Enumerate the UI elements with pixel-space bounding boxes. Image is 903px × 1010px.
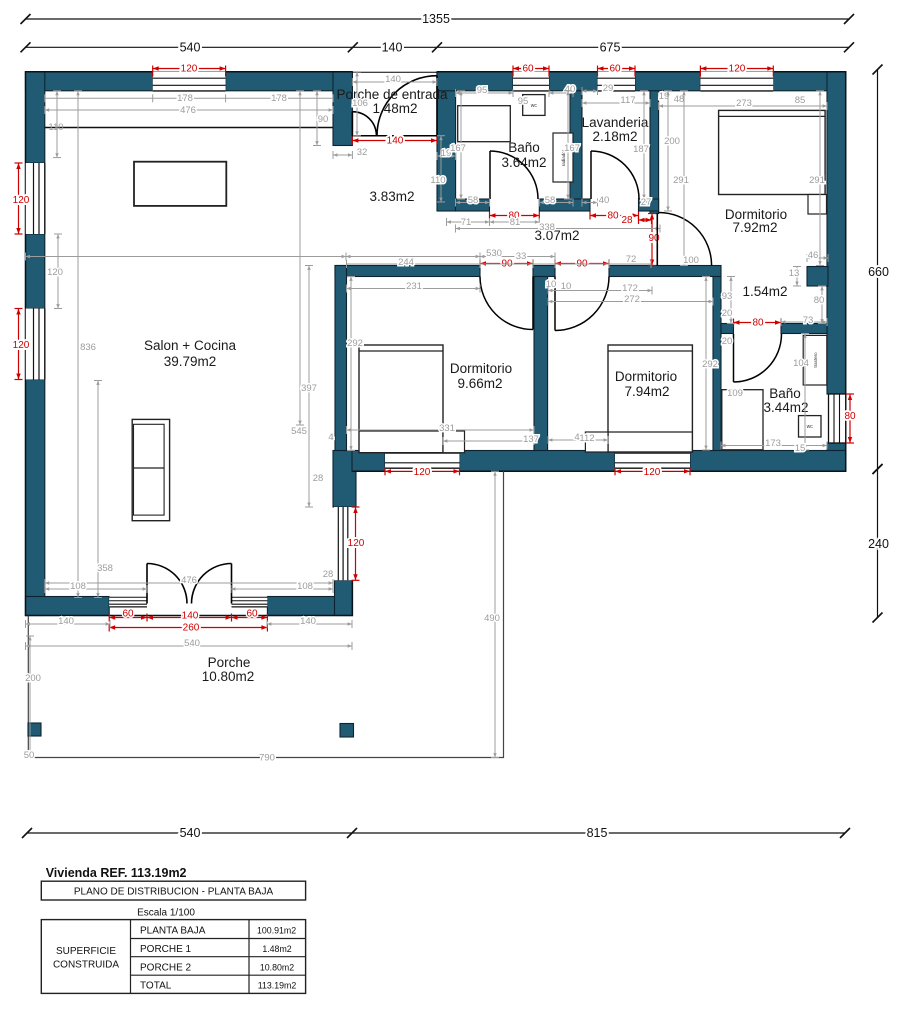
svg-text:Escala 1/100: Escala 1/100 bbox=[137, 908, 195, 919]
svg-text:104: 104 bbox=[793, 358, 809, 369]
svg-text:wc: wc bbox=[807, 424, 814, 430]
svg-text:260: 260 bbox=[183, 623, 200, 634]
svg-text:20: 20 bbox=[722, 308, 733, 319]
svg-text:20: 20 bbox=[722, 336, 733, 347]
svg-text:120: 120 bbox=[348, 538, 365, 549]
svg-text:32: 32 bbox=[357, 147, 368, 158]
svg-text:80: 80 bbox=[607, 211, 619, 222]
svg-text:Vivienda REF. 113.19m2: Vivienda REF. 113.19m2 bbox=[46, 866, 187, 880]
svg-text:95: 95 bbox=[477, 85, 488, 96]
svg-text:108: 108 bbox=[297, 581, 313, 592]
svg-text:CONSTRUIDA: CONSTRUIDA bbox=[53, 960, 119, 971]
svg-text:10.80m2: 10.80m2 bbox=[260, 963, 294, 973]
svg-text:790: 790 bbox=[259, 753, 275, 764]
svg-text:15: 15 bbox=[795, 443, 806, 454]
svg-text:291: 291 bbox=[809, 175, 825, 186]
svg-text:476: 476 bbox=[181, 575, 197, 586]
svg-text:93: 93 bbox=[722, 291, 733, 302]
svg-text:140: 140 bbox=[385, 74, 401, 85]
svg-text:60: 60 bbox=[246, 609, 258, 620]
svg-text:110: 110 bbox=[48, 122, 63, 133]
svg-text:167: 167 bbox=[450, 143, 466, 154]
svg-text:28: 28 bbox=[313, 473, 324, 484]
svg-text:490: 490 bbox=[484, 613, 500, 624]
svg-text:1.48m2: 1.48m2 bbox=[262, 944, 291, 954]
svg-text:PLANTA BAJA: PLANTA BAJA bbox=[140, 926, 206, 937]
svg-text:140: 140 bbox=[300, 616, 316, 627]
svg-text:90: 90 bbox=[318, 114, 329, 125]
svg-text:1355: 1355 bbox=[422, 12, 450, 26]
svg-text:27: 27 bbox=[641, 197, 652, 208]
svg-text:540: 540 bbox=[180, 40, 201, 54]
svg-text:1.48m2: 1.48m2 bbox=[372, 101, 417, 116]
svg-text:660: 660 bbox=[868, 265, 889, 279]
svg-text:120: 120 bbox=[414, 467, 431, 478]
svg-text:4: 4 bbox=[328, 432, 333, 443]
svg-text:40: 40 bbox=[565, 84, 576, 95]
svg-text:540: 540 bbox=[184, 638, 200, 649]
svg-text:58: 58 bbox=[468, 195, 479, 206]
svg-text:140: 140 bbox=[382, 40, 403, 54]
svg-text:675: 675 bbox=[600, 40, 621, 54]
svg-text:200: 200 bbox=[25, 673, 41, 684]
svg-text:81: 81 bbox=[510, 217, 521, 228]
svg-text:PORCHE 2: PORCHE 2 bbox=[140, 963, 192, 974]
svg-text:178: 178 bbox=[177, 93, 193, 104]
svg-text:338: 338 bbox=[539, 222, 555, 233]
svg-text:60: 60 bbox=[522, 64, 534, 75]
svg-text:58: 58 bbox=[545, 195, 556, 206]
svg-text:29: 29 bbox=[603, 83, 614, 94]
svg-text:4: 4 bbox=[574, 432, 579, 443]
svg-text:120: 120 bbox=[47, 267, 63, 278]
svg-text:836: 836 bbox=[80, 342, 96, 353]
svg-text:1.54m2: 1.54m2 bbox=[742, 284, 787, 299]
svg-text:292: 292 bbox=[702, 359, 718, 370]
svg-text:200: 200 bbox=[664, 136, 680, 147]
svg-text:Dormitorio: Dormitorio bbox=[450, 361, 512, 376]
svg-text:wc: wc bbox=[531, 103, 538, 109]
svg-text:85: 85 bbox=[795, 95, 806, 106]
svg-text:167: 167 bbox=[564, 143, 580, 154]
svg-text:530: 530 bbox=[486, 248, 502, 259]
svg-text:60: 60 bbox=[122, 609, 134, 620]
svg-text:397: 397 bbox=[301, 383, 317, 394]
svg-text:39.79m2: 39.79m2 bbox=[164, 354, 217, 369]
svg-text:815: 815 bbox=[587, 826, 608, 840]
svg-text:2.18m2: 2.18m2 bbox=[592, 129, 637, 144]
svg-text:100: 100 bbox=[683, 255, 699, 266]
svg-text:120: 120 bbox=[13, 195, 30, 206]
svg-text:110: 110 bbox=[430, 175, 445, 186]
svg-text:Porche: Porche bbox=[208, 655, 251, 670]
svg-text:trastero: trastero bbox=[813, 352, 818, 368]
svg-text:106: 106 bbox=[352, 98, 368, 109]
svg-text:292: 292 bbox=[347, 338, 363, 349]
svg-text:80: 80 bbox=[752, 318, 764, 329]
svg-text:46: 46 bbox=[808, 250, 819, 261]
svg-text:545: 545 bbox=[291, 426, 307, 437]
svg-text:60: 60 bbox=[609, 64, 621, 75]
svg-text:272: 272 bbox=[624, 294, 640, 305]
svg-text:Baño: Baño bbox=[769, 386, 801, 401]
svg-text:112: 112 bbox=[579, 433, 594, 444]
svg-text:Lavanderia: Lavanderia bbox=[582, 115, 649, 130]
svg-text:120: 120 bbox=[13, 340, 30, 351]
svg-text:108: 108 bbox=[70, 581, 86, 592]
svg-text:80: 80 bbox=[844, 411, 856, 422]
svg-text:SUPERFICIE: SUPERFICIE bbox=[56, 946, 116, 957]
svg-text:10.80m2: 10.80m2 bbox=[202, 669, 255, 684]
svg-text:3.64m2: 3.64m2 bbox=[501, 155, 546, 170]
svg-text:40: 40 bbox=[599, 195, 610, 206]
svg-text:117: 117 bbox=[620, 95, 635, 106]
svg-text:140: 140 bbox=[182, 611, 199, 622]
svg-text:Baño: Baño bbox=[508, 140, 540, 155]
svg-text:178: 178 bbox=[271, 93, 287, 104]
svg-text:10: 10 bbox=[546, 279, 557, 290]
svg-text:140: 140 bbox=[58, 616, 74, 627]
svg-text:7.92m2: 7.92m2 bbox=[732, 220, 777, 235]
svg-text:3.83m2: 3.83m2 bbox=[369, 189, 414, 204]
svg-text:358: 358 bbox=[97, 563, 113, 574]
svg-text:231: 231 bbox=[406, 281, 422, 292]
svg-text:72: 72 bbox=[626, 254, 637, 265]
svg-text:95: 95 bbox=[518, 96, 529, 107]
svg-text:3.44m2: 3.44m2 bbox=[763, 400, 808, 415]
svg-text:113.19m2: 113.19m2 bbox=[258, 981, 297, 991]
svg-text:TOTAL: TOTAL bbox=[140, 981, 172, 992]
svg-text:187: 187 bbox=[633, 144, 649, 155]
svg-text:240: 240 bbox=[868, 537, 889, 551]
svg-text:476: 476 bbox=[180, 105, 196, 116]
svg-text:33: 33 bbox=[516, 251, 527, 262]
svg-text:13: 13 bbox=[789, 268, 800, 279]
svg-text:71: 71 bbox=[461, 217, 472, 228]
svg-text:Salon + Cocina: Salon + Cocina bbox=[144, 338, 236, 353]
svg-text:100.91m2: 100.91m2 bbox=[257, 926, 296, 936]
svg-text:120: 120 bbox=[644, 467, 661, 478]
svg-text:9.66m2: 9.66m2 bbox=[457, 376, 502, 391]
svg-text:PLANO DE DISTRIBUCION - PLANTA: PLANO DE DISTRIBUCION - PLANTA BAJA bbox=[74, 887, 274, 898]
svg-text:7.94m2: 7.94m2 bbox=[624, 384, 669, 399]
svg-text:140: 140 bbox=[387, 136, 404, 147]
svg-text:137: 137 bbox=[523, 434, 539, 445]
svg-text:109: 109 bbox=[727, 388, 743, 399]
svg-text:331: 331 bbox=[439, 423, 455, 434]
svg-text:244: 244 bbox=[398, 257, 414, 268]
svg-text:28: 28 bbox=[621, 215, 633, 226]
svg-text:120: 120 bbox=[729, 64, 746, 75]
svg-text:80: 80 bbox=[814, 295, 825, 306]
svg-text:273: 273 bbox=[736, 98, 752, 109]
svg-text:120: 120 bbox=[181, 64, 198, 75]
svg-text:48: 48 bbox=[674, 94, 685, 105]
svg-text:291: 291 bbox=[673, 175, 689, 186]
svg-text:50: 50 bbox=[24, 750, 35, 761]
svg-text:Dormitorio: Dormitorio bbox=[615, 369, 677, 384]
svg-text:73: 73 bbox=[803, 315, 814, 326]
svg-text:172: 172 bbox=[622, 283, 638, 294]
svg-text:PORCHE 1: PORCHE 1 bbox=[140, 944, 192, 955]
svg-text:28: 28 bbox=[323, 569, 334, 580]
svg-text:90: 90 bbox=[648, 233, 660, 244]
svg-text:173: 173 bbox=[765, 438, 781, 449]
svg-text:540: 540 bbox=[180, 826, 201, 840]
